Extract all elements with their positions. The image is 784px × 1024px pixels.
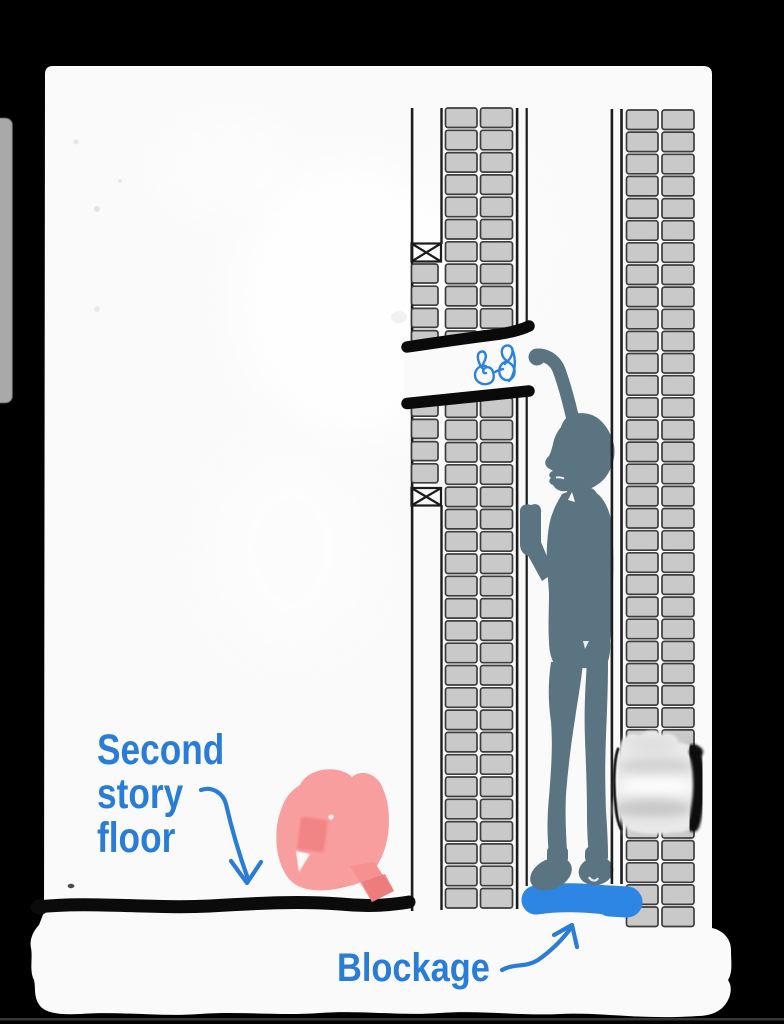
svg-text:story: story <box>97 770 183 818</box>
svg-text:Second: Second <box>97 726 224 774</box>
svg-text:floor: floor <box>97 814 175 862</box>
svg-text:Blockage: Blockage <box>337 945 490 990</box>
